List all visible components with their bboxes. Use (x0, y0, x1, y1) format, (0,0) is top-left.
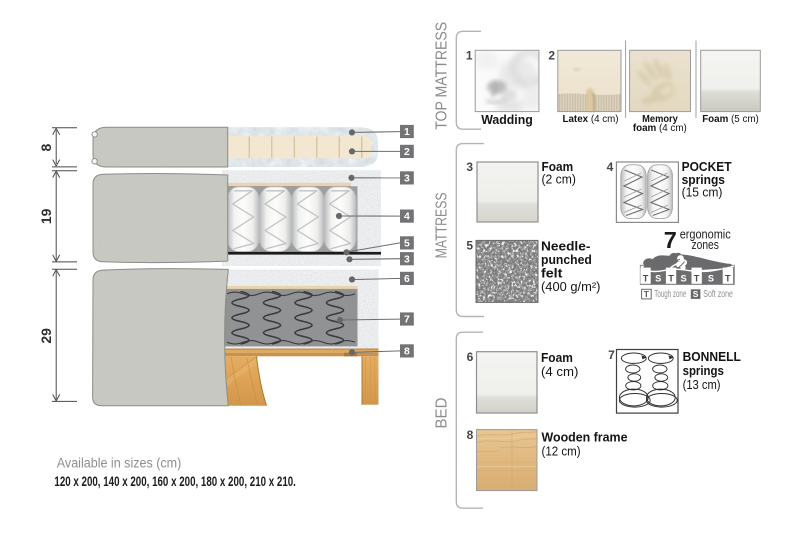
svg-text:Soft zone: Soft zone (703, 289, 733, 300)
svg-text:4: 4 (607, 160, 614, 174)
svg-text:Available in sizes (cm): Available in sizes (cm) (57, 456, 182, 472)
svg-text:S: S (693, 289, 699, 299)
svg-text:1: 1 (466, 49, 473, 63)
svg-text:T: T (694, 273, 700, 283)
svg-text:T: T (668, 273, 674, 283)
svg-text:zones: zones (692, 237, 719, 252)
svg-text:29: 29 (38, 328, 54, 344)
svg-text:6: 6 (404, 274, 410, 285)
svg-text:BONNELL: BONNELL (683, 349, 741, 364)
svg-text:S: S (708, 273, 714, 283)
svg-text:2: 2 (548, 49, 555, 63)
svg-text:3: 3 (404, 254, 410, 265)
svg-text:1: 1 (404, 127, 410, 138)
svg-text:TOP MATTRESS: TOP MATTRESS (434, 22, 451, 130)
svg-text:5: 5 (404, 239, 410, 250)
svg-text:Foam (5 cm): Foam (5 cm) (702, 114, 759, 125)
svg-text:Wadding: Wadding (481, 113, 533, 127)
svg-text:4: 4 (404, 212, 410, 223)
svg-text:7: 7 (664, 227, 677, 253)
svg-text:7: 7 (404, 315, 410, 326)
svg-text:19: 19 (38, 208, 54, 224)
svg-text:6: 6 (467, 350, 474, 364)
svg-text:5: 5 (466, 238, 473, 252)
svg-text:2: 2 (404, 147, 410, 158)
svg-text:Foam: Foam (541, 350, 573, 365)
svg-text:(12 cm): (12 cm) (542, 444, 581, 459)
svg-text:BED: BED (434, 398, 451, 429)
svg-text:springs: springs (683, 363, 724, 378)
svg-text:(4 cm): (4 cm) (541, 364, 578, 379)
svg-text:120 x 200, 140 x 200, 160 x 20: 120 x 200, 140 x 200, 160 x 200, 180 x 2… (54, 474, 296, 489)
svg-text:foam (4 cm): foam (4 cm) (633, 123, 687, 134)
svg-text:T: T (725, 273, 731, 283)
svg-text:Tough zone: Tough zone (654, 289, 686, 300)
svg-text:8: 8 (467, 428, 474, 442)
svg-text:MATTRESS: MATTRESS (434, 192, 451, 258)
svg-text:3: 3 (404, 174, 410, 185)
svg-text:7: 7 (608, 348, 615, 362)
svg-text:(13 cm): (13 cm) (683, 377, 721, 392)
svg-text:T: T (644, 289, 650, 299)
svg-text:8: 8 (404, 347, 410, 358)
svg-text:3: 3 (466, 160, 473, 174)
svg-text:S: S (655, 273, 661, 283)
svg-text:(2 cm): (2 cm) (542, 171, 576, 186)
svg-text:(400 g/m²): (400 g/m²) (541, 279, 600, 294)
svg-text:8: 8 (38, 143, 54, 151)
svg-text:S: S (681, 273, 687, 283)
svg-text:(15 cm): (15 cm) (682, 185, 723, 200)
svg-text:Wooden frame: Wooden frame (542, 430, 628, 445)
svg-text:Latex (4 cm): Latex (4 cm) (563, 114, 619, 125)
svg-text:T: T (643, 273, 649, 283)
